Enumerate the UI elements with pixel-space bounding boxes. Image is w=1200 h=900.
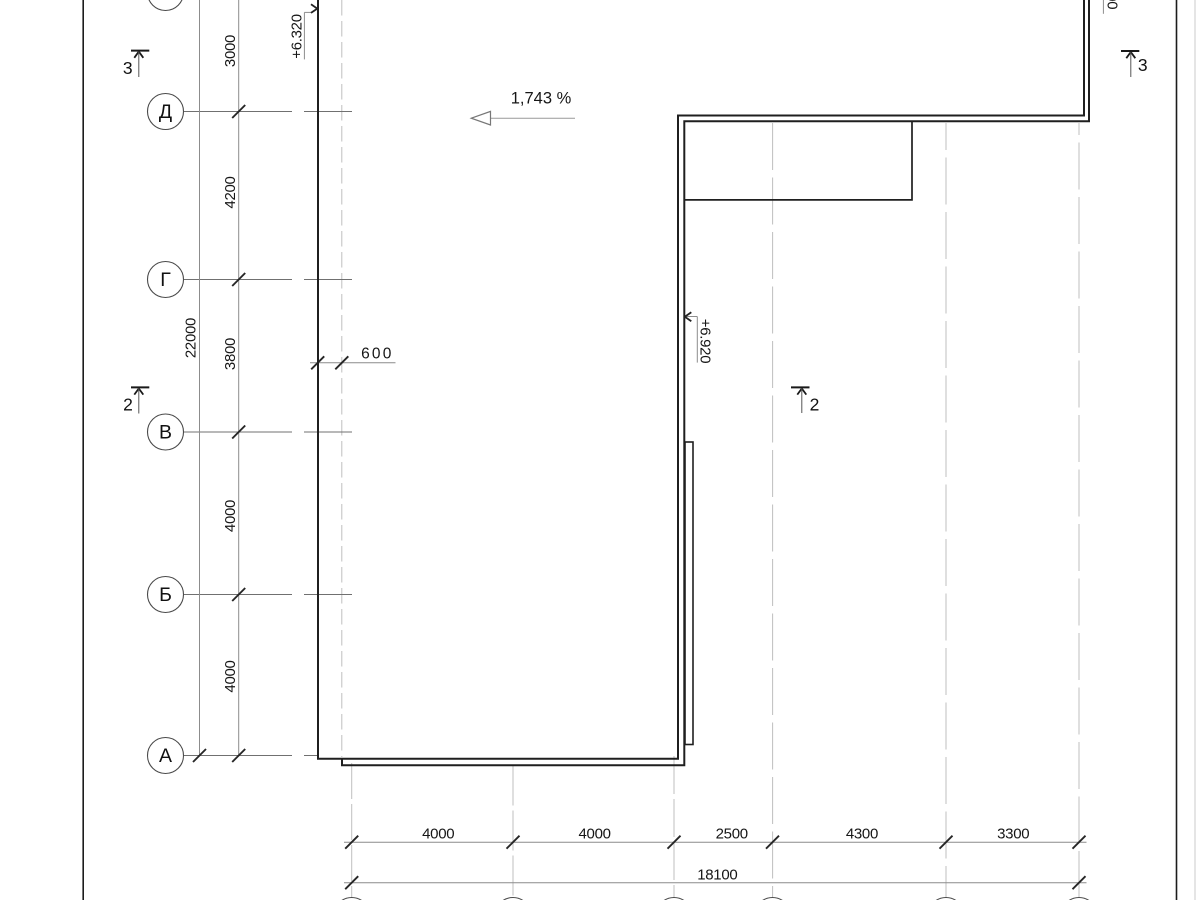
- svg-text:А: А: [159, 745, 172, 767]
- svg-text:3: 3: [1138, 55, 1148, 75]
- svg-text:4000: 4000: [222, 500, 239, 532]
- svg-text:3000: 3000: [222, 35, 239, 67]
- svg-text:1,743 %: 1,743 %: [511, 90, 572, 108]
- svg-text:4300: 4300: [846, 826, 878, 843]
- svg-text:+6.920: +6.920: [697, 319, 714, 364]
- svg-text:3300: 3300: [997, 826, 1029, 843]
- svg-text:22000: 22000: [183, 318, 200, 358]
- svg-text:4000: 4000: [579, 826, 611, 843]
- svg-text:4000: 4000: [222, 660, 239, 692]
- svg-text:Б: Б: [159, 584, 172, 606]
- svg-text:2500: 2500: [716, 826, 748, 843]
- svg-text:18100: 18100: [697, 867, 737, 884]
- svg-text:В: В: [159, 422, 172, 444]
- svg-text:4000: 4000: [422, 826, 454, 843]
- svg-text:+8.100: +8.100: [1104, 0, 1121, 9]
- svg-text:4200: 4200: [222, 176, 239, 208]
- svg-text:3: 3: [123, 58, 133, 78]
- svg-text:Г: Г: [160, 269, 171, 291]
- svg-text:600: 600: [361, 346, 393, 363]
- svg-text:2: 2: [810, 395, 820, 415]
- svg-text:3800: 3800: [222, 338, 239, 370]
- svg-text:Д: Д: [159, 101, 172, 123]
- svg-text:+6.320: +6.320: [289, 14, 306, 59]
- svg-text:2: 2: [123, 395, 133, 415]
